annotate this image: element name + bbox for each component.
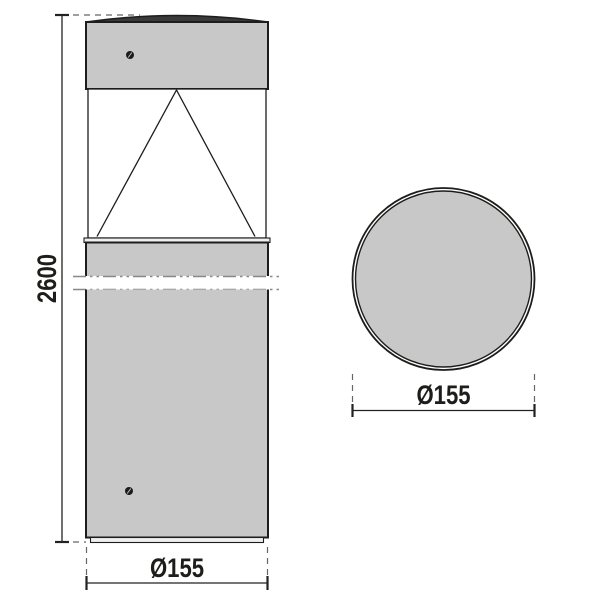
- base-plate: [91, 538, 264, 543]
- elevation-view: [73, 16, 283, 543]
- top-view-inner-circle: [356, 191, 532, 367]
- post-upper-section: [86, 243, 268, 277]
- elevation-diameter-dimension: Ø155: [87, 547, 268, 590]
- top-diameter-dimension: Ø155: [353, 374, 535, 417]
- top-diameter-label: Ø155: [416, 381, 470, 411]
- bollard-head: [86, 22, 268, 89]
- post-screw: [125, 487, 133, 495]
- post-lower-section: [86, 290, 268, 538]
- elevation-diameter-label: Ø155: [150, 554, 204, 584]
- head-screw: [126, 51, 134, 59]
- post-upper-fill: [86, 243, 268, 277]
- top-view: [353, 188, 535, 370]
- height-dimension-label: 2600: [33, 254, 63, 303]
- drawing-canvas: 2600 Ø155 Ø155: [0, 0, 600, 600]
- diffuser-chamber: [88, 89, 266, 238]
- bollard-technical-drawing: 2600 Ø155 Ø155: [0, 0, 600, 600]
